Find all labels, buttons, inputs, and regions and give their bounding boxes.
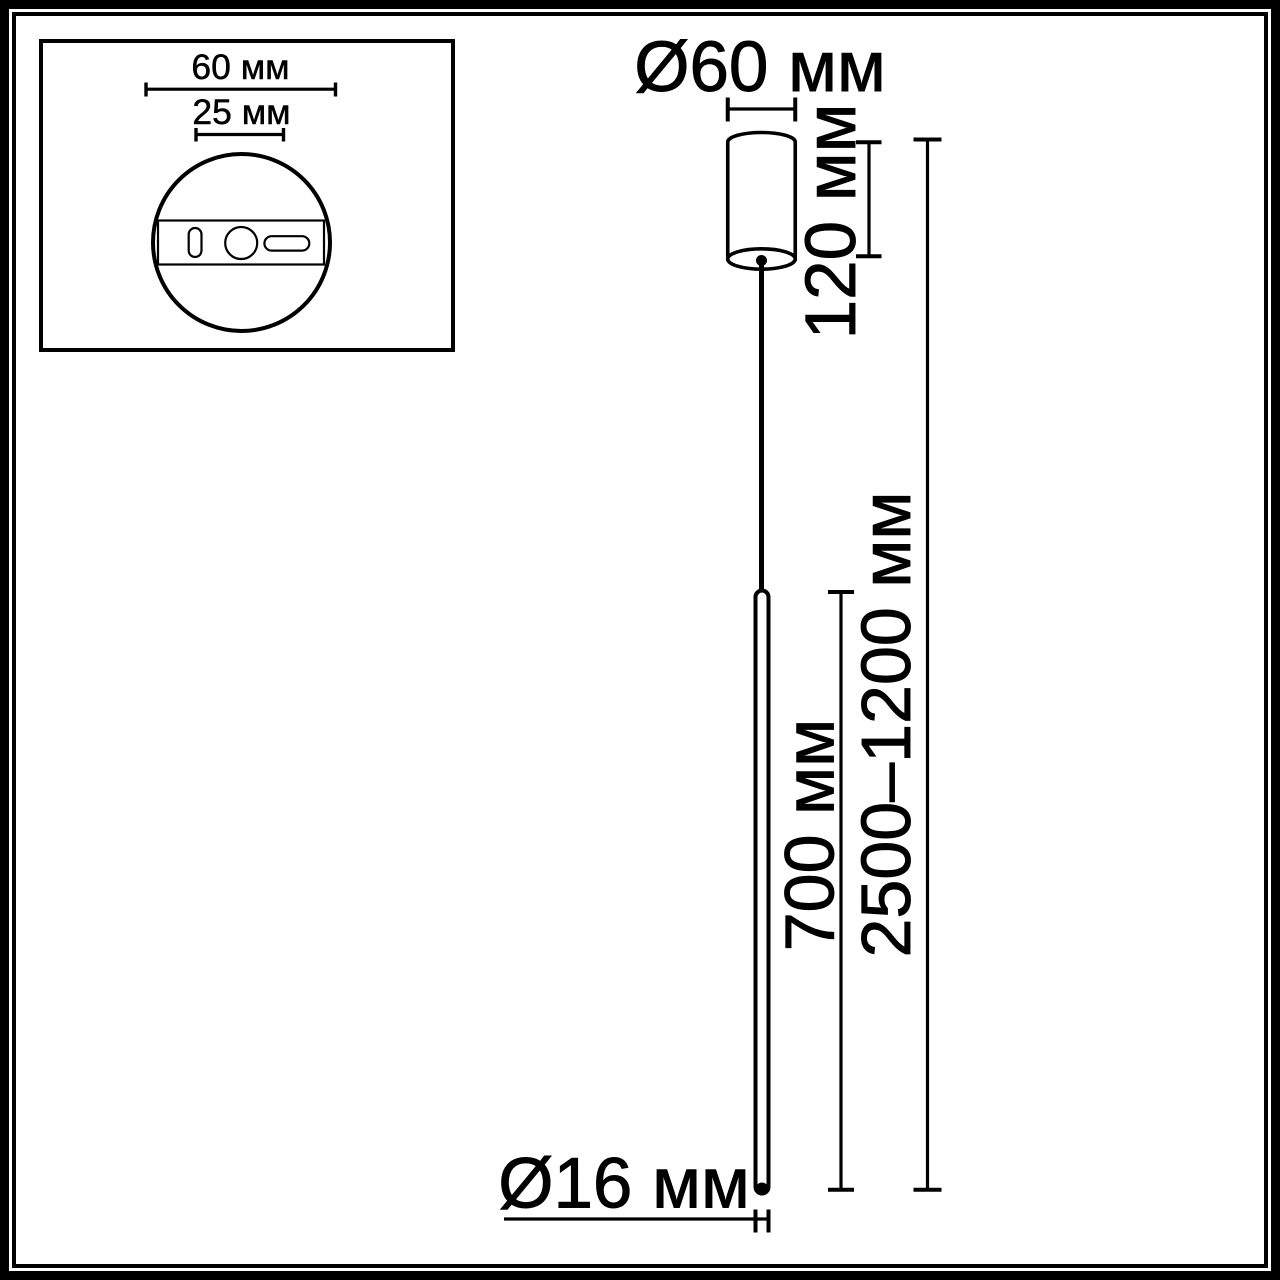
svg-text:60 мм: 60 мм — [191, 47, 289, 87]
svg-text:120 мм: 120 мм — [792, 104, 871, 340]
svg-text:Ø16 мм: Ø16 мм — [498, 1145, 750, 1224]
svg-text:25 мм: 25 мм — [192, 92, 290, 132]
svg-text:Ø60 мм: Ø60 мм — [634, 28, 886, 107]
svg-text:700 мм: 700 мм — [771, 719, 849, 952]
svg-text:2500–1200 мм: 2500–1200 мм — [847, 491, 925, 957]
